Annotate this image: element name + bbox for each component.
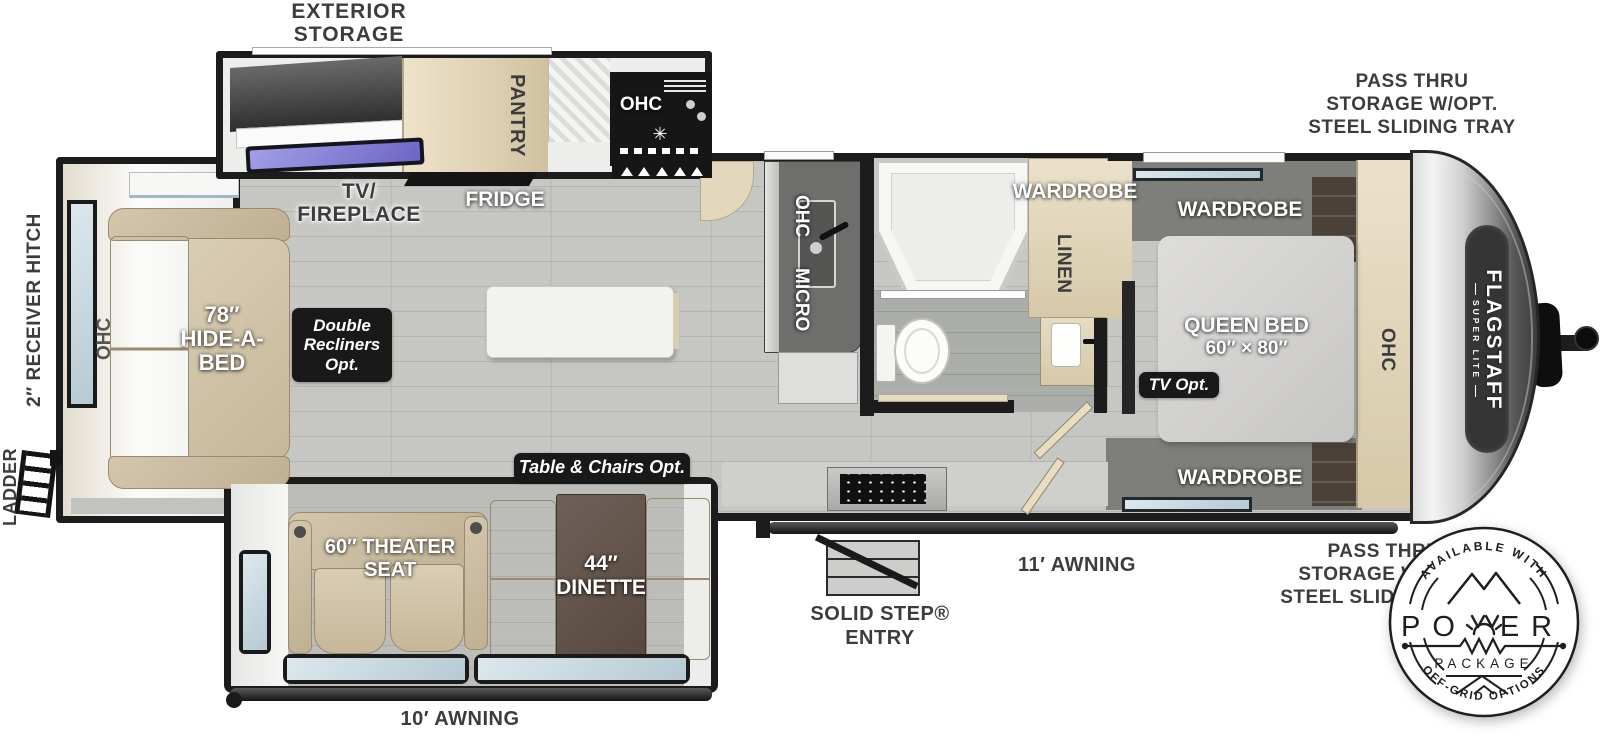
brand-sub-dash <box>1476 385 1477 397</box>
badge-word-left: PO <box>1401 611 1467 643</box>
exterior-storage-line1: EXTERIOR <box>270 0 428 23</box>
range-vent <box>664 80 706 93</box>
bedroom-window-bottom-glass <box>1125 500 1249 509</box>
slide-bottom-window-right-glass <box>478 658 686 680</box>
shower-glass <box>880 290 1026 299</box>
table-chairs-text: Table & Chairs Opt. <box>519 457 685 478</box>
kitchen-slide-top-window <box>252 47 552 55</box>
counter-hatch <box>548 58 610 142</box>
slide-floor-strip <box>71 498 233 514</box>
badge-word-right: ER <box>1500 611 1564 643</box>
hitch-jack-knob <box>1574 326 1599 351</box>
rear-window <box>67 200 97 408</box>
tooth-icon <box>674 167 686 176</box>
queen-bed-label: QUEEN BED 60″ × 80″ <box>1164 314 1329 360</box>
awning-rail-10ft <box>230 688 712 701</box>
theater-seat-label-line2: SEAT <box>300 559 480 582</box>
theater-seat-label-line1: 60″ THEATER <box>300 536 480 559</box>
ladder-bracket <box>50 450 62 466</box>
bedroom-window-bottom <box>1122 497 1252 512</box>
island-wood-edge <box>673 293 679 349</box>
window-above-counter <box>764 151 834 160</box>
hide-a-bed-label-line1: 78″ <box>164 303 280 327</box>
kitchen-island <box>486 286 674 358</box>
table-chairs-badge: Table & Chairs Opt. <box>514 453 690 482</box>
range-knob-1 <box>686 100 695 109</box>
rear-window-glass <box>71 204 93 404</box>
slide-bottom-window-right <box>474 654 690 684</box>
range-front-teeth <box>612 164 712 178</box>
range-grate <box>620 148 704 154</box>
wardrobe-label-3: WARDROBE <box>1160 466 1320 490</box>
tooth-icon <box>621 167 633 176</box>
slide-left-window <box>239 550 271 654</box>
rv-floorplan: TV/ FIREPLACE FRIDGE OHC MICRO LINEN WAR… <box>0 0 1600 738</box>
exterior-storage-label: EXTERIOR STORAGE <box>270 0 428 46</box>
ohc-label-stove: OHC <box>612 94 670 116</box>
pass-thru-front-line1: PASS THRU <box>1292 70 1532 93</box>
awning-10-label: 10′ AWNING <box>384 708 536 731</box>
hide-a-bed-label-line3: BED <box>164 351 280 375</box>
double-recliners-line3: Opt. <box>325 355 359 375</box>
dinette-bench-right <box>646 498 710 660</box>
counter-edge <box>765 162 779 352</box>
dinette-label: 44″ DINETTE <box>548 552 654 600</box>
bath-threshold <box>878 394 1008 402</box>
wardrobe-label-2: WARDROBE <box>1160 198 1320 222</box>
range-knob-2 <box>697 112 706 121</box>
cupholder-icon <box>470 522 482 534</box>
tv-opt-badge: TV Opt. <box>1139 372 1219 398</box>
badge-package-text: PACKAGE <box>1434 656 1533 671</box>
ladder-label: LADDER <box>0 432 22 542</box>
double-recliners-line2: Recliners <box>304 335 381 355</box>
toilet <box>894 318 950 384</box>
pass-thru-label-front: PASS THRU STORAGE W/OPT. STEEL SLIDING T… <box>1292 70 1532 139</box>
awning-rail-endcap <box>226 692 242 708</box>
under-counter-cabinet <box>778 352 858 404</box>
burner-icon: ✳ <box>648 124 672 148</box>
tooth-icon <box>691 167 703 176</box>
skylight-glass <box>1136 171 1260 178</box>
queen-bed-label-line1: QUEEN BED <box>1164 314 1329 338</box>
fridge-label: FRIDGE <box>450 188 560 212</box>
brand-sub-dash <box>1476 283 1477 295</box>
tv-opt-text: TV Opt. <box>1149 375 1209 395</box>
solid-step-label: SOLID STEP® ENTRY <box>796 602 964 650</box>
double-recliners-line1: Double <box>313 316 371 336</box>
queen-bed-label-line2: 60″ × 80″ <box>1164 338 1329 360</box>
awning-rail-11ft <box>768 522 1398 534</box>
theater-seat-label: 60″ THEATER SEAT <box>300 536 480 582</box>
brand-logo: FLAGSTAFF SUPER LITE <box>1468 258 1508 422</box>
linen-label: LINEN <box>1046 216 1074 312</box>
solid-step-label-line1: SOLID STEP® <box>796 602 964 626</box>
hide-a-bed-label-line2: HIDE-A- <box>164 327 280 351</box>
awning-rail-bracket <box>756 518 770 538</box>
slide-bottom-window-left-glass <box>287 658 465 680</box>
bath-wall-left <box>860 158 874 416</box>
griddle-top <box>840 474 926 504</box>
receiver-hitch-label: 2″ RECEIVER HITCH <box>24 194 54 426</box>
brand-sub: SUPER LITE <box>1471 283 1481 397</box>
double-recliners-badge: Double Recliners Opt. <box>292 308 392 382</box>
bedroom-tv-mount <box>1122 281 1135 414</box>
outside-griddle <box>827 467 947 511</box>
brand-name: FLAGSTAFF <box>1481 269 1505 410</box>
toilet-seat <box>904 328 940 374</box>
shower <box>874 158 1032 298</box>
power-package-badge: AVAILABLE WITH PO ER <box>1386 524 1582 720</box>
tv-screen-glass <box>250 142 421 170</box>
pass-thru-front-line3: STEEL SLIDING TRAY <box>1292 116 1532 139</box>
slide-bottom-window-left <box>283 654 469 684</box>
wardrobe-label-1: WARDROBE <box>996 180 1154 204</box>
ohc-label-kitchen: OHC <box>786 186 812 246</box>
exterior-storage-line2: STORAGE <box>270 23 428 46</box>
awning-11-label: 11′ AWNING <box>1003 554 1151 577</box>
ohc-label-bedroom: OHC <box>1372 322 1398 378</box>
micro-label: MICRO <box>786 254 812 346</box>
bedroom-window-top <box>1143 152 1285 163</box>
bath-wall-vanity-right <box>1094 316 1107 413</box>
tooth-icon <box>656 167 668 176</box>
slide-left-window-glass <box>243 554 267 650</box>
vanity-sink <box>1051 323 1081 367</box>
tooth-icon <box>638 167 650 176</box>
solid-step-label-line2: ENTRY <box>796 626 964 650</box>
toilet-tank <box>876 324 896 382</box>
dinette-label-line1: 44″ <box>548 552 654 576</box>
dinette-bench-left <box>490 500 556 658</box>
hide-a-bed-label: 78″ HIDE-A- BED <box>164 303 280 375</box>
tv-fireplace-label: TV/ FIREPLACE <box>288 180 430 226</box>
dinette-label-line2: DINETTE <box>548 576 654 600</box>
pass-thru-front-line2: STORAGE W/OPT. <box>1292 93 1532 116</box>
ohc-label-rear: OHC <box>94 306 120 372</box>
brand-sub-text: SUPER LITE <box>1471 300 1481 380</box>
pantry-label: PANTRY <box>498 62 528 168</box>
range-stove: ✳ <box>610 72 712 166</box>
